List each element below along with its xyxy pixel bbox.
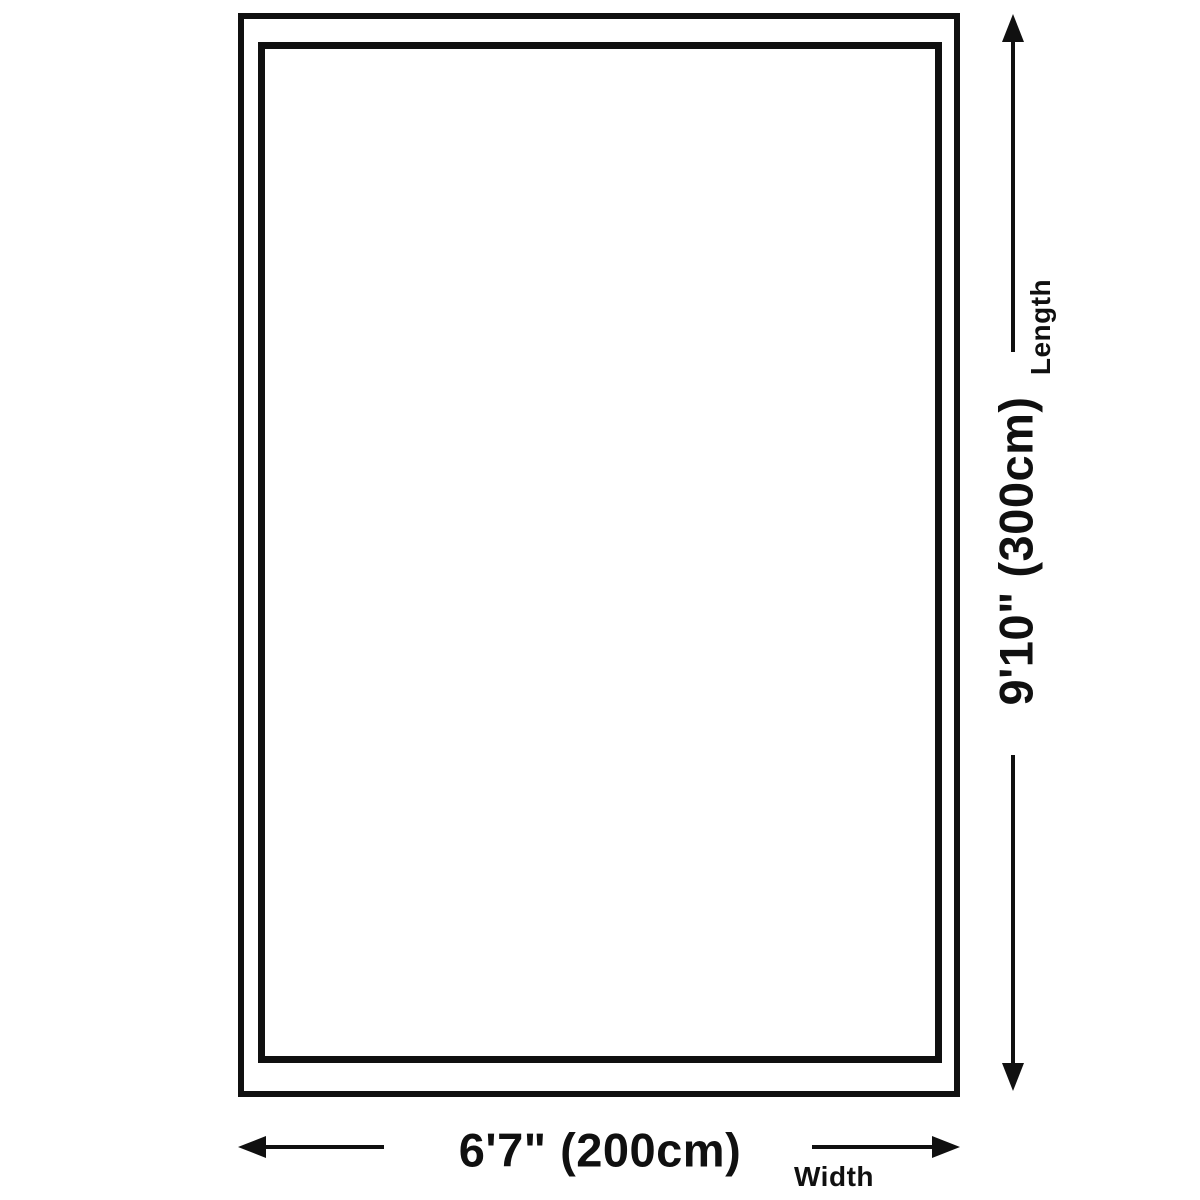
rug-size-diagram: 9'10" (300cm) Length 6'7" (200cm) Width [0,0,1200,1200]
width-dimension-value: 6'7" (200cm) [459,1127,741,1174]
width-axis-label: Width [794,1163,874,1191]
rug-outline-outer [238,13,960,1097]
length-axis-label: Length [1027,279,1055,375]
length-dimension-value: 9'10" (300cm) [993,396,1040,705]
arrow-up-icon [1002,14,1024,42]
rug-outline-inner [258,42,942,1063]
arrow-right-icon [932,1136,960,1158]
arrow-left-icon [238,1136,266,1158]
arrow-down-icon [1002,1063,1024,1091]
